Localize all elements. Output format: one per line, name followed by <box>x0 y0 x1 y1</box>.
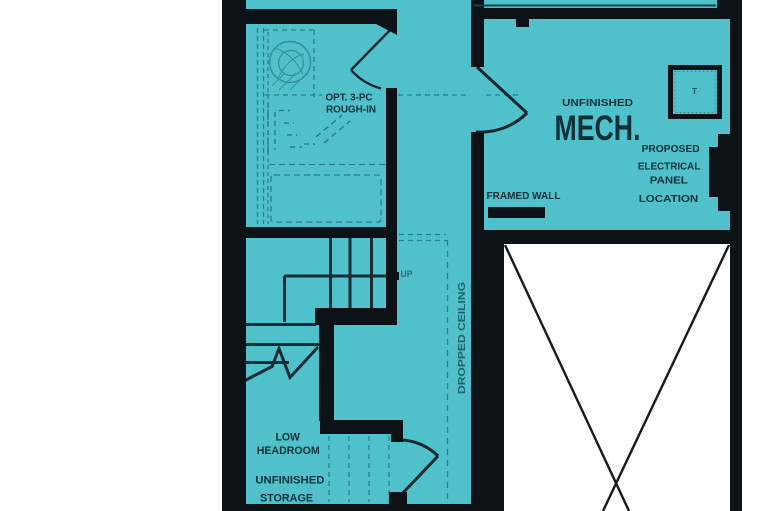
svg-text:PROPOSED: PROPOSED <box>642 143 700 155</box>
svg-text:HEADROOM: HEADROOM <box>257 445 320 457</box>
svg-text:OPT. 3-PC: OPT. 3-PC <box>326 92 373 104</box>
svg-text:UNFINISHED: UNFINISHED <box>255 475 324 487</box>
svg-text:UP: UP <box>401 269 413 279</box>
svg-text:PANEL: PANEL <box>650 175 689 187</box>
svg-text:FRAMED WALL: FRAMED WALL <box>487 191 561 202</box>
svg-text:ROUGH-IN: ROUGH-IN <box>326 104 376 116</box>
svg-text:STORAGE: STORAGE <box>260 492 313 504</box>
svg-text:ELECTRICAL: ELECTRICAL <box>638 161 701 173</box>
svg-text:MECH.: MECH. <box>555 109 641 148</box>
svg-text:DROPPED CEILING: DROPPED CEILING <box>457 282 468 394</box>
svg-text:UNFINISHED: UNFINISHED <box>562 98 633 109</box>
svg-text:LOCATION: LOCATION <box>639 193 699 205</box>
svg-text:T: T <box>692 86 698 96</box>
svg-text:LOW: LOW <box>275 432 300 444</box>
